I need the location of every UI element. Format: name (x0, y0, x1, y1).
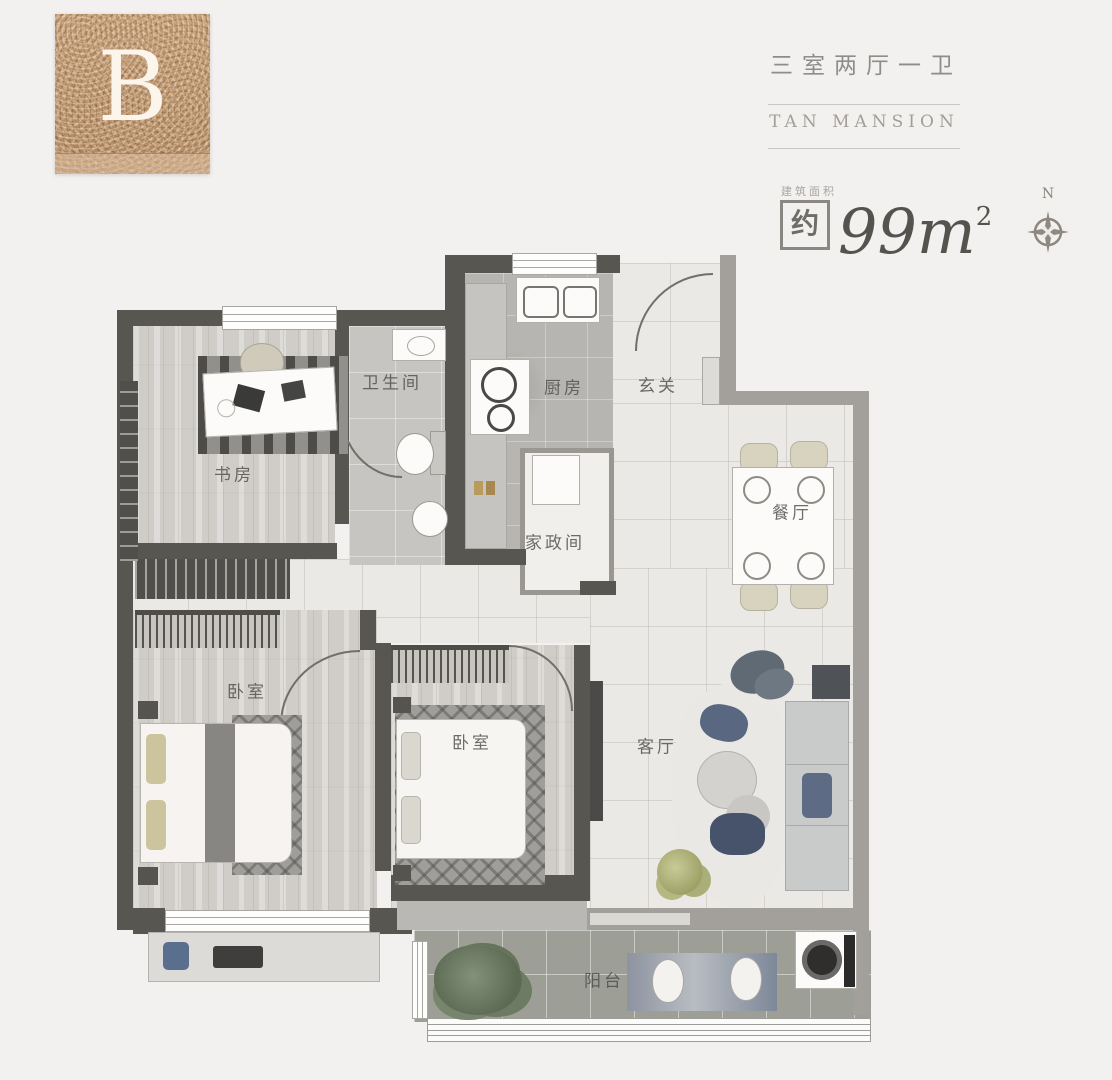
kitchen-jar (474, 481, 483, 495)
label-bedroom-mid: 卧室 (452, 729, 492, 754)
bed-left (140, 723, 292, 863)
kitchen-jar-2 (486, 481, 495, 495)
bedmid-bay-ledge (397, 901, 587, 930)
sink-basin-left (523, 286, 559, 318)
place-setting (797, 552, 825, 580)
sofa-throw (802, 773, 832, 818)
stove (470, 359, 530, 435)
pillow (401, 796, 421, 844)
desk-plate (217, 399, 236, 418)
bay-window-seat (148, 932, 380, 982)
area-caption: 建筑面积 (781, 183, 837, 199)
unit-letter: B (55, 22, 210, 152)
window-bedroom-left-bay (165, 910, 370, 932)
nightstand (138, 701, 158, 719)
burner-large (481, 367, 517, 403)
balcony-chair (652, 959, 684, 1003)
wall-kitchen-bottom (461, 549, 526, 565)
corridor-cabinet (135, 559, 290, 599)
compass-rose-icon (1018, 202, 1078, 262)
living-balcony-slider (590, 913, 690, 925)
wall-bedmid-right (574, 645, 590, 875)
bed-runner (205, 724, 235, 862)
plant-living (657, 849, 703, 895)
floor-plan: 书房 卫生间 厨房 玄关 家政间 餐厅 卧室 卧室 客厅 阳台 (112, 253, 888, 1053)
seat-pillow (163, 942, 189, 970)
place-setting (743, 552, 771, 580)
vanity-basin (407, 336, 435, 356)
nightstand (393, 697, 411, 713)
tv-console (590, 681, 603, 821)
logo-bottom-band (55, 153, 210, 174)
sink-basin-right (563, 286, 597, 318)
wall-right (853, 405, 869, 930)
dining-chair (740, 581, 778, 611)
desk-book (232, 384, 265, 412)
brand-name: TAN MANSION (768, 112, 960, 132)
floor-plan-page: B 三室两厅一卫 TAN MANSION 建筑面积 约 99m2 N (0, 0, 1112, 1080)
wall-kitchen-left (445, 255, 465, 565)
pillow (146, 734, 166, 784)
bathroom-vanity (392, 329, 446, 361)
wardrobe-bedroom-mid (391, 645, 509, 683)
utility-appliance (532, 455, 580, 505)
desk-study (202, 367, 337, 438)
divider-line-top (768, 104, 960, 105)
label-dining: 餐厅 (772, 499, 812, 524)
area-unit: m (917, 195, 976, 268)
balcony-railing (427, 1018, 871, 1042)
pillow (146, 800, 166, 850)
label-utility: 家政间 (525, 529, 585, 554)
wall-bay-left-stub (133, 908, 165, 934)
balcony-chair (730, 957, 762, 1001)
wall-study-bottom (117, 543, 337, 559)
layout-title: 三室两厅一卫 (770, 46, 962, 80)
window-kitchen (512, 253, 597, 275)
nightstand (393, 865, 411, 881)
washer-drum (802, 940, 842, 980)
label-entry: 玄关 (638, 372, 678, 397)
shoe-cabinet (702, 357, 720, 405)
wall-utility-notch (580, 581, 616, 595)
washing-machine (795, 931, 857, 989)
burner-small (487, 404, 515, 432)
compass-n-label: N (1016, 186, 1080, 202)
wall-dining-step (720, 391, 869, 405)
area-superscript: 2 (976, 202, 993, 232)
label-living: 客厅 (637, 733, 677, 758)
toilet-bowl (396, 433, 434, 475)
wall-bedroom-divider (375, 643, 391, 871)
nightstand (138, 867, 158, 885)
seat-tray (213, 946, 263, 968)
washer-panel (844, 935, 855, 987)
divider-line-bottom (768, 148, 960, 149)
plant-balcony (434, 945, 522, 1015)
window-study (222, 306, 337, 330)
ottoman-blue (710, 813, 765, 855)
place-setting (743, 476, 771, 504)
unit-logo-badge: B (55, 14, 210, 174)
label-bathroom: 卫生间 (362, 369, 422, 394)
pillow (401, 732, 421, 780)
area-value: 99m2 (838, 186, 992, 263)
wardrobe-bedroom-left (135, 610, 280, 648)
label-study: 书房 (214, 461, 254, 486)
label-bedroom-left: 卧室 (227, 678, 267, 703)
sofa-side-table (812, 665, 850, 699)
bookshelf-study (120, 381, 138, 561)
pedestal-sink (412, 501, 448, 537)
wall-bedleft-door-stub (360, 610, 376, 650)
north-compass-icon: N (1016, 186, 1080, 266)
label-balcony: 阳台 (584, 967, 624, 992)
window-balcony-left (412, 941, 428, 1019)
dining-table (732, 467, 834, 585)
approx-box: 约 (780, 200, 830, 250)
kitchen-sink-unit (516, 277, 600, 323)
label-kitchen: 厨房 (544, 374, 584, 399)
wall-entry-right (720, 255, 736, 403)
desk-book-2 (281, 380, 306, 402)
